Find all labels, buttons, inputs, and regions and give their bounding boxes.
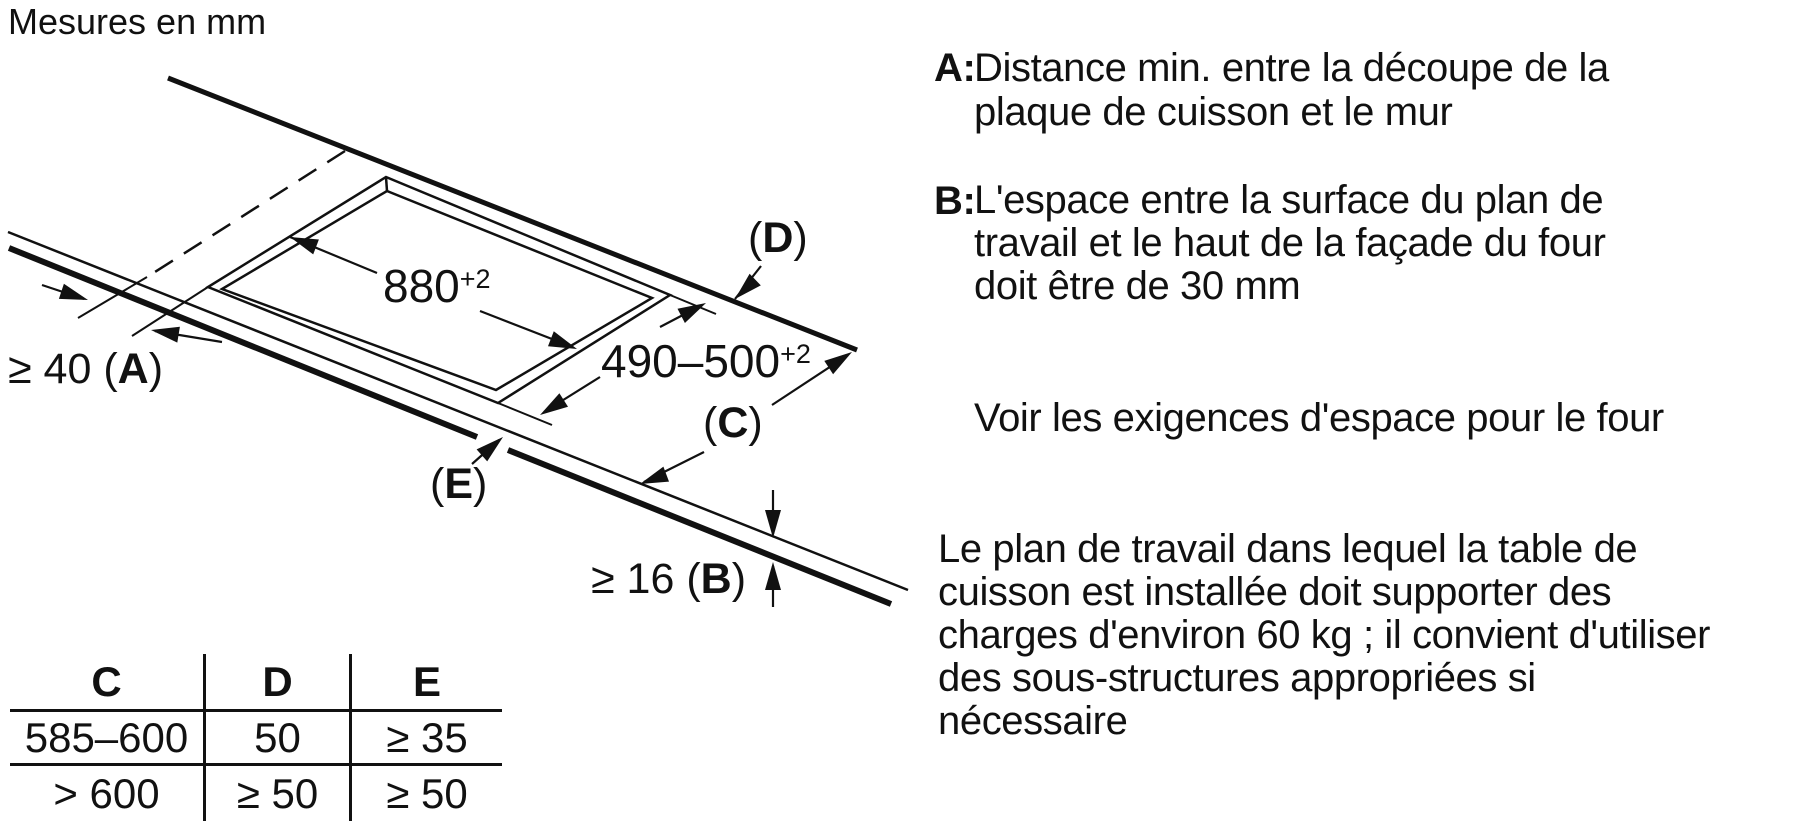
legend-a-text: Distance min. entre la découpe de la pla… <box>974 46 1609 134</box>
extension-line-s <box>498 403 552 425</box>
callout-c-label: (C) <box>703 402 763 445</box>
legend-a-line: Distance min. entre la découpe de la <box>974 46 1609 90</box>
table-row: > 600 ≥ 50 ≥ 50 <box>10 766 502 821</box>
dim-880-tolerance: +2 <box>460 264 491 294</box>
dim-490-500-value: 490–500 <box>601 335 780 387</box>
page-title: Mesures en mm <box>8 4 266 40</box>
dim-490-500-label: 490–500+2 <box>601 338 811 384</box>
dim-b-suffix: ) <box>732 555 746 603</box>
cutout-corner-tick <box>386 177 387 191</box>
dim-a-prefix: ≥ 40 ( <box>8 345 118 393</box>
callout-c-suffix: ) <box>748 399 762 447</box>
dim-a-label: ≥ 40 (A) <box>8 348 163 391</box>
table-header-d: D <box>203 654 352 709</box>
dim-a-letter: A <box>118 345 149 393</box>
paragraph-line: charges d'environ 60 kg ; il convient d'… <box>938 614 1710 657</box>
callout-c-prefix: ( <box>703 399 717 447</box>
paragraph-line: des sous-structures appropriées si <box>938 657 1710 700</box>
table-header-c: C <box>10 654 203 709</box>
callout-e-letter: E <box>444 460 473 508</box>
dim-b-letter: B <box>701 555 732 603</box>
paragraph-line: nécessaire <box>938 700 1710 743</box>
callout-d-prefix: ( <box>748 214 762 262</box>
table-header-row: C D E <box>10 654 502 712</box>
load-requirement-paragraph: Le plan de travail dans lequel la table … <box>938 528 1710 743</box>
table-row: 585–600 50 ≥ 35 <box>10 712 502 766</box>
callout-e-label: (E) <box>430 463 487 506</box>
wall-hidden-dashed-line <box>147 151 345 277</box>
dim-a-suffix: ) <box>149 345 163 393</box>
callout-e-suffix: ) <box>473 460 487 508</box>
legend-a-key: A: <box>934 46 975 90</box>
table-cell-d2: ≥ 50 <box>203 766 352 821</box>
legend-b-line: L'espace entre la surface du plan de <box>974 179 1606 222</box>
legend-a-line: plaque de cuisson et le mur <box>974 90 1609 134</box>
paragraph-line: cuisson est installée doit supporter des <box>938 571 1710 614</box>
dim-b-label: ≥ 16 (B) <box>591 558 746 601</box>
table-cell-c2: > 600 <box>10 766 203 821</box>
callout-c-letter: C <box>717 399 748 447</box>
dim-880-value: 880 <box>383 260 460 312</box>
table-cell-c1: 585–600 <box>10 712 203 763</box>
legend-b-text: L'espace entre la surface du plan de tra… <box>974 179 1606 308</box>
legend-b-key: B: <box>934 179 975 223</box>
paragraph-line: Le plan de travail dans lequel la table … <box>938 528 1710 571</box>
legend-b-line: travail et le haut de la façade du four <box>974 222 1606 265</box>
table-cell-d1: 50 <box>203 712 352 763</box>
dim-880-label: 880+2 <box>383 263 491 309</box>
callout-d-letter: D <box>762 214 793 262</box>
manual-page: Mesures en mm 880+2 490–500+2 ≥ 40 (A) ≥… <box>0 0 1810 821</box>
table-header-e: E <box>352 654 502 709</box>
legend-b-line: doit être de 30 mm <box>974 265 1606 308</box>
table-cell-e1: ≥ 35 <box>352 712 502 763</box>
callout-d-suffix: ) <box>793 214 807 262</box>
callout-d-label: (D) <box>748 217 808 260</box>
callout-e-prefix: ( <box>430 460 444 508</box>
oven-space-note: Voir les exigences d'espace pour le four <box>974 396 1664 440</box>
dimension-table: C D E 585–600 50 ≥ 35 > 600 ≥ 50 ≥ 50 <box>10 654 502 821</box>
dim-b-prefix: ≥ 16 ( <box>591 555 701 603</box>
dim-490-500-tolerance: +2 <box>780 339 811 369</box>
table-cell-e2: ≥ 50 <box>352 766 502 821</box>
